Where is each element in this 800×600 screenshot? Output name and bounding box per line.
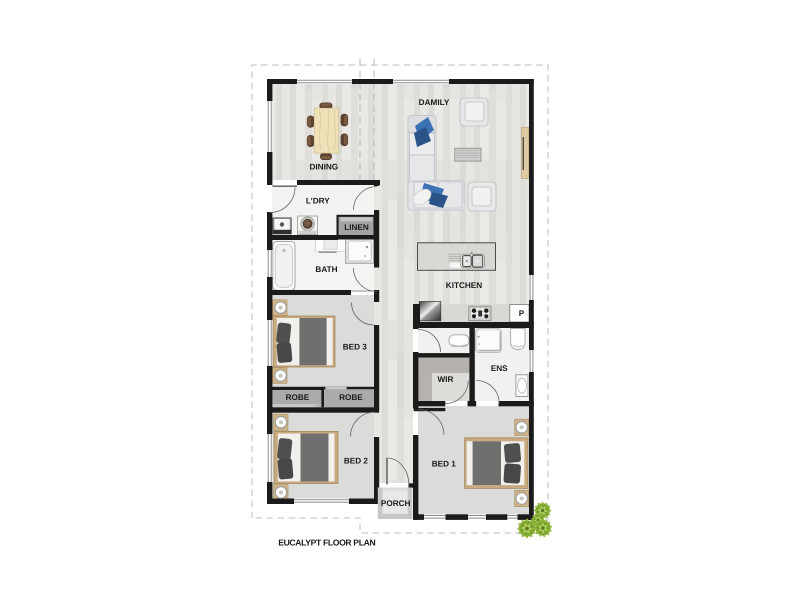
svg-text:EUCALYPT FLOOR PLAN: EUCALYPT FLOOR PLAN xyxy=(278,538,375,548)
svg-text:LINEN: LINEN xyxy=(344,223,369,232)
svg-text:DAMILY: DAMILY xyxy=(419,98,450,107)
svg-text:L’DRY: L’DRY xyxy=(306,196,330,205)
svg-text:PORCH: PORCH xyxy=(381,499,411,508)
svg-text:BATH: BATH xyxy=(315,265,337,274)
svg-text:ENS: ENS xyxy=(491,364,508,373)
svg-text:BED 2: BED 2 xyxy=(344,457,369,466)
svg-text:BED 1: BED 1 xyxy=(432,460,457,469)
svg-text:BED 3: BED 3 xyxy=(343,342,368,351)
svg-text:DINING: DINING xyxy=(309,163,338,172)
svg-text:ROBE: ROBE xyxy=(286,393,310,402)
svg-text:ROBE: ROBE xyxy=(339,393,363,402)
svg-text:KITCHEN: KITCHEN xyxy=(446,281,482,290)
svg-text:P: P xyxy=(519,309,525,318)
svg-text:WIR: WIR xyxy=(438,375,454,384)
